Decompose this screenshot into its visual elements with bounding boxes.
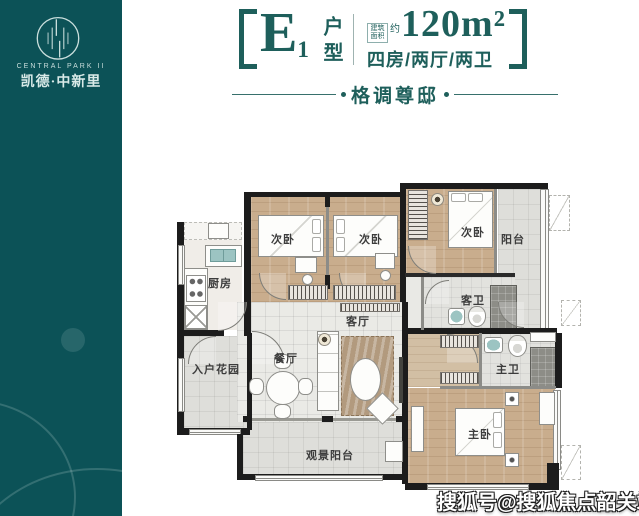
closet-rack	[440, 372, 479, 384]
unit-letter: E	[260, 2, 297, 64]
toilet-icon	[468, 306, 486, 327]
hallway-floor	[406, 277, 421, 328]
window	[189, 429, 241, 435]
bathroom-sink	[484, 337, 503, 353]
plant-icon	[431, 193, 444, 206]
area-caption: 建筑面积	[367, 23, 388, 43]
bracket-right-decor	[508, 9, 527, 69]
unit-number: 1	[297, 37, 309, 62]
room-label-entry-garden: 入户花园	[192, 361, 240, 377]
dining-table	[266, 371, 300, 405]
room-label-bedroom-a: 次卧	[271, 231, 295, 247]
room-label-master-bath: 主卫	[496, 361, 520, 377]
balcony-cabinet	[385, 441, 403, 462]
area-value: 120m²	[401, 2, 506, 46]
tagline-dot	[341, 92, 346, 97]
door-frame	[396, 416, 405, 422]
door-frame	[243, 416, 252, 422]
toilet-icon	[508, 335, 527, 357]
dining-chair	[249, 378, 264, 395]
tagline-text: 格调尊邸	[351, 81, 439, 108]
fridge	[208, 223, 229, 239]
layout-description: 四房/两厅/两卫	[367, 46, 493, 72]
room-label-master-bedroom: 主卧	[468, 426, 492, 442]
tv-screen	[399, 357, 403, 403]
plant-icon	[318, 333, 331, 346]
brand-name-en: CENTRAL PARK II	[0, 63, 122, 70]
pillow-icon	[312, 237, 321, 252]
room-label-view-balcony: 观景阳台	[306, 447, 354, 463]
nightstand	[505, 453, 519, 467]
door-frame	[322, 416, 333, 422]
wall	[440, 386, 556, 389]
master-bath-shower	[530, 347, 556, 387]
tagline-line	[232, 94, 336, 95]
bathroom-sink	[448, 308, 465, 325]
room-label-kitchen: 厨房	[208, 275, 232, 291]
ac-platform	[561, 300, 581, 326]
wardrobe	[288, 285, 328, 300]
ac-platform	[549, 195, 570, 231]
window	[178, 358, 185, 412]
tv-cabinet	[411, 406, 424, 452]
room-label-side-balcony: 阳台	[501, 231, 525, 247]
tagline-row: 格调尊邸	[232, 83, 558, 105]
wall	[400, 183, 406, 302]
chair	[380, 270, 391, 281]
room-label-bedroom-b: 次卧	[359, 231, 383, 247]
wardrobe-cabinet	[539, 392, 555, 425]
brand-name-cn: 凯德·中新里	[0, 71, 122, 91]
pillow-icon	[336, 219, 345, 234]
pillow-icon	[451, 193, 466, 202]
wall	[555, 333, 562, 388]
floorplan: 厨房 入户花园 次卧 次卧 次卧 阳台 客卫 客厅 餐厅 主卫 主卧 观景阳台	[175, 145, 595, 510]
pillow-icon	[336, 237, 345, 252]
tagline-line	[454, 94, 558, 95]
pillow-icon	[493, 432, 502, 448]
wall	[479, 333, 482, 387]
room-label-dining: 餐厅	[274, 350, 298, 366]
dining-chair	[298, 378, 313, 395]
wardrobe	[333, 285, 396, 300]
floorplan-poster: { "brand": { "name_en": "CENTRAL PARK II…	[0, 0, 639, 516]
coffee-table	[350, 358, 381, 401]
bracket-left-decor	[239, 9, 258, 69]
stove	[186, 275, 206, 302]
pillow-icon	[493, 412, 502, 428]
wall	[402, 183, 548, 189]
header-divider	[353, 14, 354, 65]
brand-logo-icon	[28, 11, 88, 69]
tagline-dot	[444, 92, 449, 97]
kitchen-cabinet	[185, 305, 207, 329]
ac-platform	[561, 445, 581, 480]
closet-rack	[440, 335, 479, 348]
watermark-text: 搜狐号@搜狐焦点韶关站	[437, 486, 639, 515]
wall	[244, 192, 251, 336]
pillow-icon	[312, 219, 321, 234]
nightstand	[505, 392, 519, 406]
brand-panel: CENTRAL PARK II 凯德·中新里	[0, 0, 122, 516]
window	[540, 189, 549, 332]
wardrobe	[408, 190, 428, 240]
area-approx: 约	[390, 20, 400, 35]
pillow-icon	[468, 193, 483, 202]
wall	[325, 197, 330, 207]
desk	[295, 257, 317, 273]
chair	[302, 274, 313, 285]
hallway-cabinet	[340, 303, 400, 312]
room-label-living: 客厅	[346, 313, 370, 329]
kitchen-sink	[210, 249, 236, 262]
dining-chair	[274, 404, 291, 419]
wall	[494, 189, 497, 273]
dot-decor	[61, 328, 85, 352]
unit-code: E1	[260, 2, 309, 64]
window	[255, 475, 383, 481]
wall	[421, 277, 424, 330]
wall	[326, 198, 329, 286]
room-label-bedroom-c: 次卧	[461, 224, 485, 240]
room-label-guest-bath: 客卫	[461, 292, 485, 308]
washer-ledge	[530, 332, 556, 342]
unit-type-label: 户型	[317, 16, 346, 72]
desk	[375, 253, 395, 269]
